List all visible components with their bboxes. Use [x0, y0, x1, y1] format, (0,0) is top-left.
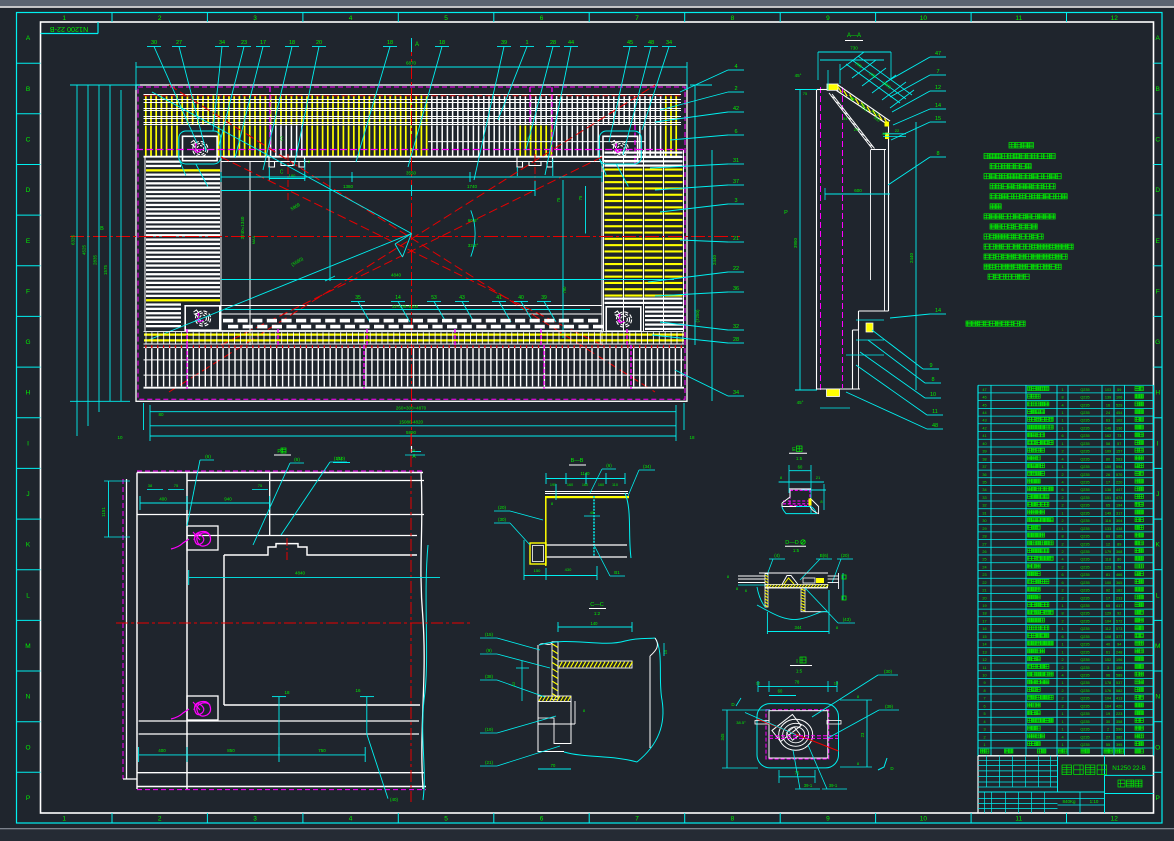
- svg-text:139: 139: [1105, 396, 1111, 400]
- svg-text:Q235: Q235: [1080, 457, 1089, 461]
- svg-text:96: 96: [1106, 674, 1110, 678]
- svg-text:N: N: [1155, 694, 1160, 701]
- svg-text:Q235: Q235: [1080, 527, 1089, 531]
- svg-text:304: 304: [1116, 519, 1122, 523]
- svg-text:12: 12: [1111, 15, 1119, 22]
- svg-text:52: 52: [511, 681, 516, 686]
- svg-text:18: 18: [689, 435, 695, 440]
- svg-text:Q235: Q235: [1080, 496, 1089, 500]
- svg-text:22×300=6600: 22×300=6600: [392, 304, 419, 309]
- svg-text:248: 248: [1116, 650, 1122, 654]
- svg-text:Q235: Q235: [1080, 573, 1089, 577]
- svg-text:102: 102: [1116, 419, 1122, 423]
- svg-text:400: 400: [159, 497, 167, 502]
- svg-text:L: L: [26, 592, 30, 599]
- svg-text:J: J: [1156, 491, 1159, 498]
- svg-text:157: 157: [1116, 450, 1122, 454]
- svg-text:118: 118: [1105, 558, 1111, 562]
- svg-text:E: E: [26, 238, 31, 245]
- svg-text:53: 53: [431, 295, 437, 301]
- svg-text:368: 368: [1116, 550, 1122, 554]
- svg-text:377: 377: [1116, 635, 1122, 639]
- svg-text:G: G: [1155, 339, 1160, 346]
- svg-text:39: 39: [982, 450, 986, 454]
- svg-text:A—A: A—A: [847, 33, 861, 39]
- svg-text:1: 1: [1061, 627, 1063, 631]
- svg-text:30: 30: [151, 40, 157, 46]
- svg-text:35: 35: [982, 481, 986, 485]
- svg-text:Q235: Q235: [1080, 535, 1089, 539]
- svg-text:583: 583: [1116, 457, 1122, 461]
- svg-text:1: 1: [1061, 427, 1063, 431]
- svg-text:7: 7: [635, 816, 639, 823]
- svg-text:6: 6: [983, 704, 985, 708]
- svg-text:89: 89: [1117, 542, 1121, 546]
- svg-text:44: 44: [568, 40, 574, 46]
- svg-text:Q235: Q235: [1080, 419, 1089, 423]
- svg-text:Q235: Q235: [1080, 403, 1089, 407]
- svg-text:21: 21: [816, 475, 821, 480]
- svg-text:F: F: [1156, 288, 1160, 295]
- svg-text:11: 11: [1015, 15, 1022, 22]
- svg-text:3: 3: [1107, 666, 1109, 670]
- svg-text:4: 4: [1061, 558, 1063, 562]
- svg-text:K: K: [26, 542, 31, 549]
- svg-text:33.2°: 33.2°: [468, 243, 479, 248]
- svg-text:38.5°: 38.5°: [736, 720, 746, 725]
- svg-text:80: 80: [1117, 558, 1121, 562]
- svg-text:103: 103: [1105, 388, 1111, 392]
- svg-text:7: 7: [936, 69, 939, 75]
- svg-text:B: B: [1156, 86, 1160, 93]
- svg-text:34: 34: [982, 488, 986, 492]
- svg-text:Q235: Q235: [1080, 550, 1089, 554]
- svg-text:850: 850: [227, 748, 235, 753]
- svg-text:146: 146: [1105, 427, 1111, 431]
- svg-text:75: 75: [258, 483, 263, 488]
- svg-text:12: 12: [982, 658, 986, 662]
- svg-text:150: 150: [534, 568, 541, 573]
- svg-text:45: 45: [627, 40, 633, 46]
- svg-text:5: 5: [983, 712, 985, 716]
- svg-text:18: 18: [387, 40, 393, 46]
- svg-text:570: 570: [1116, 473, 1122, 477]
- svg-text:41: 41: [982, 434, 986, 438]
- svg-text:G: G: [25, 339, 30, 346]
- svg-text:39-1: 39-1: [829, 783, 838, 788]
- svg-text:Q235: Q235: [1080, 658, 1089, 662]
- svg-text:1: 1: [1061, 743, 1063, 747]
- svg-text:9: 9: [983, 681, 985, 685]
- svg-text:(20): (20): [841, 553, 850, 558]
- svg-text:A: A: [26, 35, 31, 42]
- svg-text:1740: 1740: [467, 184, 478, 189]
- svg-text:75: 75: [578, 195, 583, 200]
- svg-text:80: 80: [1106, 457, 1110, 461]
- svg-text:594: 594: [1116, 465, 1122, 469]
- svg-text:Q235: Q235: [1080, 488, 1089, 492]
- svg-text:179: 179: [1105, 550, 1111, 554]
- svg-text:Q235: Q235: [1080, 704, 1089, 708]
- svg-text:27: 27: [1106, 735, 1110, 739]
- svg-text:47: 47: [935, 51, 941, 57]
- svg-text:N: N: [26, 694, 31, 701]
- svg-text:344: 344: [795, 625, 803, 630]
- svg-text:8: 8: [731, 816, 735, 823]
- svg-text:92: 92: [1117, 612, 1121, 616]
- svg-text:45: 45: [590, 510, 595, 515]
- svg-text:N1200 22-B: N1200 22-B: [50, 25, 89, 34]
- svg-text:60.8°: 60.8°: [468, 218, 479, 223]
- svg-text:2: 2: [1061, 519, 1063, 523]
- svg-text:24: 24: [982, 565, 986, 569]
- svg-text:F: F: [26, 288, 30, 295]
- svg-text:75: 75: [803, 91, 808, 96]
- svg-text:I: I: [27, 440, 29, 447]
- svg-text:39: 39: [501, 40, 507, 46]
- svg-text:B—B: B—B: [571, 458, 584, 464]
- svg-text:730: 730: [850, 46, 858, 51]
- svg-text:1: 1: [1061, 388, 1063, 392]
- svg-text:11: 11: [1015, 816, 1022, 823]
- svg-text:16: 16: [1106, 403, 1110, 407]
- svg-text:10: 10: [920, 15, 928, 22]
- svg-text:2: 2: [734, 86, 737, 92]
- svg-text:14: 14: [935, 103, 941, 109]
- svg-text:K: K: [1156, 542, 1161, 549]
- svg-text:400: 400: [158, 748, 166, 753]
- svg-text:75: 75: [174, 483, 179, 488]
- svg-text:35: 35: [355, 295, 361, 301]
- svg-text:358: 358: [1116, 720, 1122, 724]
- svg-text:176: 176: [1105, 689, 1111, 693]
- svg-text:37: 37: [982, 465, 986, 469]
- svg-text:D—D: D—D: [785, 540, 798, 546]
- svg-text:6: 6: [540, 15, 544, 22]
- svg-text:3950: 3950: [793, 237, 798, 248]
- svg-text:2: 2: [1061, 704, 1063, 708]
- svg-text:Q235: Q235: [1080, 473, 1089, 477]
- svg-text:6: 6: [1061, 434, 1063, 438]
- svg-text:B: B: [26, 86, 30, 93]
- svg-text:37: 37: [733, 179, 739, 185]
- svg-text:14: 14: [935, 308, 941, 314]
- svg-text:21: 21: [733, 236, 739, 242]
- svg-text:220: 220: [1116, 481, 1122, 485]
- svg-text:4: 4: [734, 64, 737, 70]
- svg-text:150: 150: [1105, 465, 1111, 469]
- svg-text:8: 8: [936, 151, 939, 157]
- svg-text:1: 1: [525, 40, 528, 46]
- svg-text:Q235: Q235: [1080, 396, 1089, 400]
- svg-text:36: 36: [982, 473, 986, 477]
- svg-text:590: 590: [1116, 728, 1122, 732]
- svg-text:(6): (6): [606, 463, 612, 468]
- svg-text:582: 582: [1116, 689, 1122, 693]
- svg-text:92: 92: [1106, 589, 1110, 593]
- svg-text:38: 38: [982, 457, 986, 461]
- svg-text:28: 28: [733, 337, 739, 343]
- svg-text:58: 58: [1106, 442, 1110, 446]
- svg-text:13: 13: [982, 650, 986, 654]
- svg-text:11: 11: [932, 409, 938, 415]
- svg-text:76: 76: [1117, 565, 1121, 569]
- svg-text:136: 136: [1116, 427, 1122, 431]
- svg-text:Q235: Q235: [1080, 735, 1089, 739]
- svg-text:4: 4: [349, 816, 353, 823]
- svg-text:24: 24: [1106, 411, 1110, 415]
- svg-text:420: 420: [1116, 704, 1122, 708]
- svg-text:2440: 2440: [909, 252, 914, 263]
- svg-text:165: 165: [1116, 535, 1122, 539]
- svg-text:(20): (20): [498, 505, 507, 510]
- svg-text:10: 10: [930, 392, 936, 398]
- svg-text:1: 1: [1061, 728, 1063, 732]
- svg-text:27: 27: [982, 542, 986, 546]
- svg-text:4: 4: [1061, 481, 1063, 485]
- svg-text:11: 11: [983, 666, 987, 670]
- svg-text:1: 1: [1061, 712, 1063, 716]
- svg-text:4: 4: [349, 15, 353, 22]
- svg-text:138: 138: [1105, 488, 1111, 492]
- svg-text:589: 589: [1116, 674, 1122, 678]
- svg-text:9: 9: [826, 15, 830, 22]
- svg-text:1:5: 1:5: [793, 548, 800, 553]
- svg-text:Q235: Q235: [1080, 581, 1089, 585]
- svg-text:A: A: [415, 42, 419, 48]
- svg-text:B(6): B(6): [820, 553, 829, 558]
- svg-text:1: 1: [1061, 681, 1063, 685]
- svg-text:413: 413: [1116, 697, 1122, 701]
- svg-text:4525: 4525: [82, 244, 87, 255]
- svg-text:18: 18: [439, 40, 445, 46]
- svg-text:Q235: Q235: [1080, 434, 1089, 438]
- svg-text:63: 63: [1106, 419, 1110, 423]
- svg-text:5: 5: [444, 15, 448, 22]
- svg-text:Q235: Q235: [1080, 612, 1089, 616]
- svg-text:(30): (30): [884, 669, 893, 674]
- svg-text:(15): (15): [334, 456, 343, 462]
- svg-text:1:2: 1:2: [594, 611, 601, 616]
- svg-text:194: 194: [1116, 504, 1122, 508]
- svg-text:22: 22: [733, 266, 739, 272]
- svg-text:1: 1: [983, 743, 985, 747]
- svg-text:365: 365: [1116, 581, 1122, 585]
- svg-text:2: 2: [1061, 620, 1063, 624]
- svg-text:(39): (39): [885, 704, 894, 709]
- svg-text:12: 12: [756, 681, 761, 686]
- svg-text:4: 4: [1061, 735, 1063, 739]
- svg-text:26: 26: [1106, 473, 1110, 477]
- svg-text:30: 30: [982, 519, 986, 523]
- svg-text:(34): (34): [643, 464, 652, 469]
- svg-text:529: 529: [1116, 403, 1122, 407]
- svg-text:572: 572: [1116, 620, 1122, 624]
- svg-text:112: 112: [1105, 627, 1111, 631]
- svg-text:106: 106: [1116, 396, 1122, 400]
- svg-text:7: 7: [983, 697, 985, 701]
- svg-text:C: C: [1155, 136, 1160, 143]
- svg-text:100: 100: [1105, 581, 1111, 585]
- svg-text:Q235: Q235: [1080, 589, 1089, 593]
- svg-text:223: 223: [1116, 712, 1122, 716]
- svg-text:151: 151: [1105, 496, 1111, 500]
- svg-text:20: 20: [316, 40, 322, 46]
- svg-text:178: 178: [1105, 681, 1111, 685]
- svg-text:D: D: [1155, 187, 1160, 194]
- svg-text:Q235: Q235: [1080, 604, 1089, 608]
- svg-text:417: 417: [1116, 604, 1122, 608]
- svg-text:N1250 22-B: N1250 22-B: [1112, 765, 1146, 772]
- svg-text:40: 40: [982, 442, 986, 446]
- svg-text:O: O: [1155, 744, 1160, 751]
- svg-text:1380: 1380: [343, 184, 354, 189]
- svg-text:2: 2: [1061, 504, 1063, 508]
- svg-text:12: 12: [1106, 542, 1110, 546]
- svg-text:(30): (30): [498, 517, 507, 522]
- svg-text:4840: 4840: [295, 571, 306, 576]
- svg-text:164: 164: [1105, 704, 1111, 708]
- svg-text:Q235: Q235: [1080, 388, 1089, 392]
- svg-text:M: M: [25, 643, 30, 650]
- svg-text:317: 317: [1116, 511, 1122, 515]
- svg-text:20: 20: [982, 596, 986, 600]
- svg-text:45°: 45°: [795, 73, 802, 78]
- svg-text:4: 4: [1061, 403, 1063, 407]
- svg-text:Q235: Q235: [1080, 743, 1089, 747]
- svg-text:260×300=4870: 260×300=4870: [396, 406, 427, 411]
- svg-text:(15): (15): [485, 632, 494, 637]
- svg-text:E: E: [1156, 238, 1161, 245]
- svg-text:1: 1: [1061, 650, 1063, 654]
- svg-text:Q235: Q235: [1080, 697, 1089, 701]
- svg-text:70: 70: [551, 763, 556, 768]
- svg-text:16: 16: [982, 627, 986, 631]
- svg-text:(40): (40): [390, 797, 399, 802]
- svg-text:41: 41: [496, 295, 502, 301]
- svg-text:2440: 2440: [712, 254, 717, 265]
- svg-text:48: 48: [648, 40, 654, 46]
- svg-text:94: 94: [1117, 643, 1121, 647]
- svg-text:8: 8: [731, 15, 735, 22]
- svg-text:31: 31: [733, 158, 739, 164]
- svg-text:4840: 4840: [391, 273, 402, 278]
- svg-text:14: 14: [982, 643, 986, 647]
- svg-text:6: 6: [540, 816, 544, 823]
- svg-text:1: 1: [1061, 527, 1063, 531]
- svg-text:940: 940: [224, 497, 232, 502]
- svg-text:(9): (9): [486, 648, 492, 653]
- svg-text:(6): (6): [205, 454, 211, 460]
- svg-text:B: B: [100, 226, 104, 232]
- svg-text:A: A: [1156, 35, 1161, 42]
- svg-text:45°: 45°: [797, 400, 804, 405]
- svg-text:55: 55: [1106, 743, 1110, 747]
- svg-text:12: 12: [1111, 816, 1119, 823]
- svg-text:9: 9: [929, 363, 932, 369]
- svg-text:40: 40: [882, 131, 887, 136]
- svg-text:2: 2: [158, 816, 162, 823]
- svg-text:(38): (38): [485, 674, 494, 679]
- svg-text:Q235: Q235: [1080, 620, 1089, 624]
- svg-text:6: 6: [1061, 581, 1063, 585]
- svg-text:2: 2: [1061, 596, 1063, 600]
- svg-text:36: 36: [733, 286, 739, 292]
- svg-text:447: 447: [1116, 488, 1122, 492]
- svg-text:18: 18: [284, 690, 290, 695]
- svg-text:8: 8: [1061, 535, 1063, 539]
- svg-text:18: 18: [982, 612, 986, 616]
- svg-text:57: 57: [1117, 442, 1121, 446]
- svg-text:8: 8: [1061, 612, 1063, 616]
- svg-text:1: 1: [1061, 604, 1063, 608]
- svg-text:2: 2: [1107, 728, 1109, 732]
- svg-text:26: 26: [982, 550, 986, 554]
- svg-text:109: 109: [1105, 450, 1111, 454]
- svg-text:12: 12: [935, 85, 941, 91]
- svg-text:Q235: Q235: [1080, 681, 1089, 685]
- svg-text:6325: 6325: [71, 234, 76, 245]
- svg-text:2: 2: [1061, 689, 1063, 693]
- svg-text:(43): (43): [843, 617, 852, 622]
- svg-text:190: 190: [550, 483, 556, 487]
- svg-text:4: 4: [983, 720, 985, 724]
- svg-text:B1: B1: [614, 570, 620, 575]
- svg-text:8: 8: [931, 377, 934, 383]
- svg-text:Q235: Q235: [1080, 465, 1089, 469]
- svg-text:9: 9: [826, 816, 830, 823]
- svg-text:1:5: 1:5: [796, 456, 803, 461]
- svg-text:2: 2: [1061, 542, 1063, 546]
- svg-text:1: 1: [1061, 720, 1063, 724]
- svg-text:C: C: [280, 170, 284, 176]
- svg-text:(21): (21): [485, 760, 494, 765]
- svg-text:Q235: Q235: [1080, 411, 1089, 415]
- svg-text:P: P: [784, 210, 788, 216]
- svg-text:840Kg: 840Kg: [1062, 799, 1076, 804]
- svg-text:104: 104: [1105, 620, 1111, 624]
- svg-text:15: 15: [663, 649, 668, 654]
- svg-text:14: 14: [395, 295, 401, 301]
- svg-text:73: 73: [1117, 434, 1121, 438]
- svg-text:1: 1: [1061, 643, 1063, 647]
- svg-text:160: 160: [582, 483, 588, 487]
- svg-text:38: 38: [148, 483, 153, 488]
- svg-text:104: 104: [1105, 697, 1111, 701]
- svg-text:28: 28: [550, 40, 556, 46]
- svg-text:149: 149: [1105, 511, 1111, 515]
- svg-text:750: 750: [318, 748, 326, 753]
- svg-text:395: 395: [1116, 743, 1122, 747]
- svg-text:34: 34: [733, 390, 739, 396]
- svg-text:6: 6: [1061, 573, 1063, 577]
- svg-text:2: 2: [983, 735, 985, 739]
- svg-text:10: 10: [982, 674, 986, 678]
- svg-text:15080-4820: 15080-4820: [399, 420, 424, 425]
- svg-text:18: 18: [289, 40, 295, 46]
- svg-text:3: 3: [253, 816, 257, 823]
- svg-text:25: 25: [854, 127, 859, 132]
- svg-text:133: 133: [1105, 527, 1111, 531]
- svg-text:1: 1: [1061, 465, 1063, 469]
- svg-text:2: 2: [1061, 697, 1063, 701]
- svg-text:19: 19: [1106, 712, 1110, 716]
- svg-text:123: 123: [1105, 565, 1111, 569]
- svg-text:8: 8: [1061, 396, 1063, 400]
- svg-text:Q235: Q235: [1080, 542, 1089, 546]
- svg-text:8: 8: [983, 689, 985, 693]
- svg-text:29: 29: [982, 527, 986, 531]
